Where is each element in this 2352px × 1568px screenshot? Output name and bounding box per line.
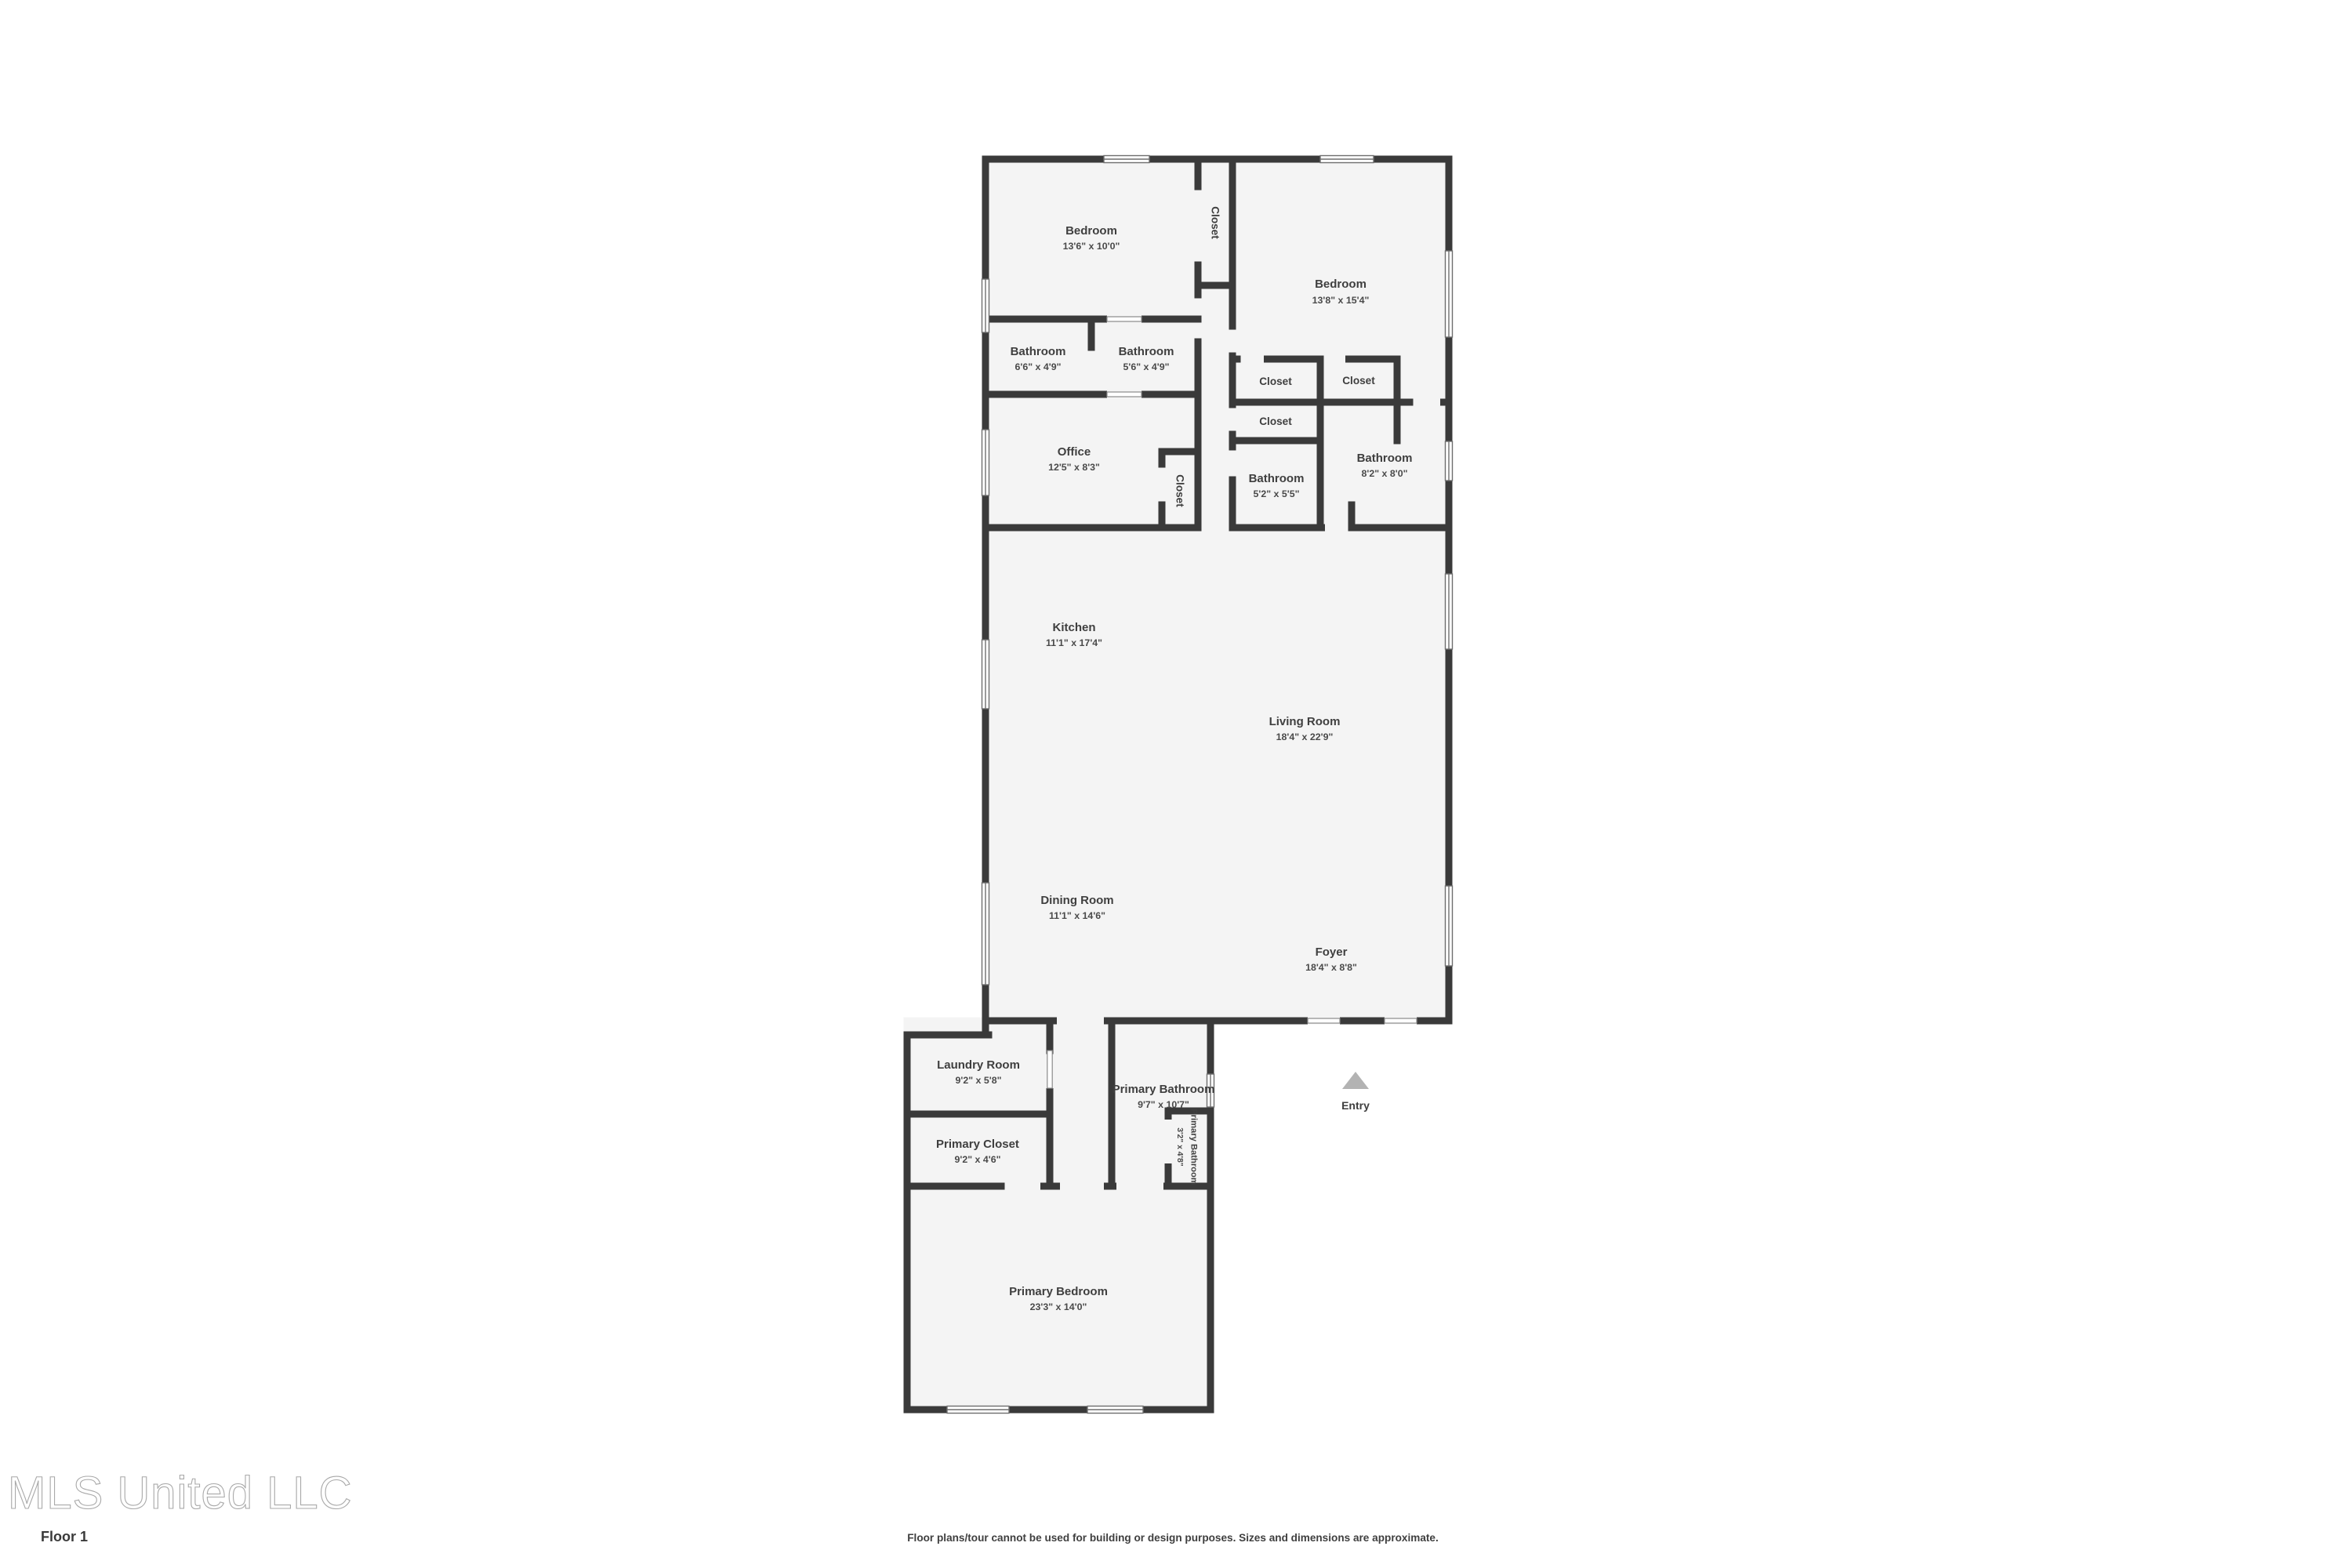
door-panel (1107, 392, 1142, 397)
entry-marker: Entry (1341, 1072, 1370, 1112)
brand-watermark: MLS United LLC (8, 1468, 353, 1519)
room-dims: 3'2" x 4'8" (1175, 1127, 1184, 1167)
room-dims: 9'7" x 10'7" (1138, 1099, 1189, 1110)
room-name: Kitchen (1052, 621, 1095, 634)
window (982, 430, 989, 495)
room-dims: 8'2" x 8'0" (1362, 468, 1408, 479)
entry-door-panel (1385, 1018, 1417, 1023)
room-dims: 12'5" x 8'3" (1048, 462, 1100, 473)
entry-door-panel (1308, 1018, 1340, 1023)
room-dims: 5'2" x 5'5" (1254, 488, 1300, 499)
entry-arrow-icon (1342, 1072, 1369, 1089)
window (1446, 251, 1453, 337)
room-name: Foyer (1316, 946, 1348, 959)
room-dims: 11'1" x 17'4" (1046, 637, 1102, 648)
room-label-closet-bedroom-1: Closet (1209, 206, 1221, 239)
window (1446, 886, 1453, 966)
room-dims: 13'6" x 10'0" (1063, 241, 1120, 252)
room-name: Bathroom (1119, 345, 1174, 358)
room-name: Closet (1259, 416, 1292, 427)
door-panel (1107, 317, 1142, 321)
room-name: Living Room (1269, 715, 1341, 728)
window (1446, 441, 1453, 481)
window (947, 1406, 1009, 1414)
room-name: Bathroom (1249, 472, 1305, 485)
room-name: Bedroom (1065, 224, 1117, 238)
room-name: Closet (1209, 206, 1221, 239)
room-label-closet-a: Closet (1259, 376, 1292, 387)
window (982, 883, 989, 985)
footer: MLS United LLC Floor 1 Floor plans/tour … (8, 1468, 1439, 1544)
window (982, 640, 989, 709)
room-name: Closet (1259, 376, 1292, 387)
room-dims: 5'6" x 4'9" (1123, 361, 1170, 372)
room-name: Primary Bathroom (1112, 1083, 1215, 1096)
room-dims: 13'8" x 15'4" (1312, 295, 1370, 306)
room-name: Primary Bathroom (1189, 1109, 1199, 1185)
room-name: Bathroom (1011, 345, 1066, 358)
floor-label: Floor 1 (41, 1529, 88, 1544)
room-dims: 9'2" x 5'8" (956, 1075, 1002, 1086)
window (1446, 574, 1453, 649)
room-dims: 18'4" x 22'9" (1276, 731, 1334, 742)
room-name: Dining Room (1040, 894, 1113, 907)
room-name: Primary Closet (936, 1138, 1019, 1151)
floor-plan-canvas: Bedroom 13'6" x 10'0" Closet Bedroom 13'… (0, 0, 2352, 1568)
room-dims: 9'2" x 4'6" (955, 1154, 1001, 1165)
room-name: Bathroom (1357, 452, 1413, 465)
room-dims: 18'4" x 8'8" (1305, 962, 1357, 973)
window (1320, 156, 1374, 163)
room-name: Closet (1174, 474, 1185, 507)
room-name: Closet (1342, 375, 1375, 387)
room-dims: 6'6" x 4'9" (1015, 361, 1062, 372)
entry-label: Entry (1341, 1099, 1370, 1112)
room-name: Laundry Room (937, 1058, 1020, 1072)
room-dims: 11'1" x 14'6" (1049, 910, 1105, 921)
window (1087, 1406, 1143, 1414)
room-name: Bedroom (1315, 278, 1367, 291)
window (982, 279, 989, 332)
disclaimer-text: Floor plans/tour cannot be used for buil… (907, 1532, 1439, 1544)
room-label-closet-c: Closet (1259, 416, 1292, 427)
room-label-office-closet: Closet (1174, 474, 1185, 507)
room-label-closet-b: Closet (1342, 375, 1375, 387)
room-name: Primary Bedroom (1009, 1285, 1108, 1298)
room-name: Office (1058, 445, 1091, 459)
window (1104, 156, 1149, 163)
room-dims: 23'3" x 14'0" (1030, 1301, 1087, 1312)
door-panel (1047, 1051, 1052, 1088)
